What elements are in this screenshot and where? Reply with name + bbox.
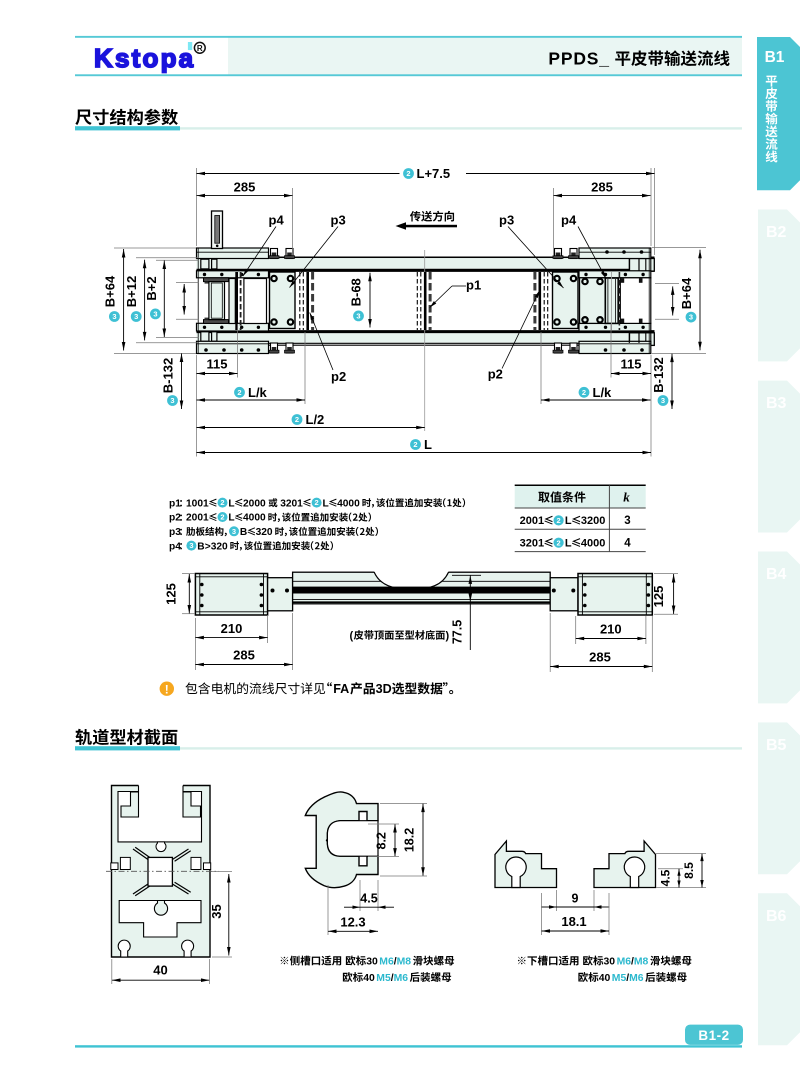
svg-text:2: 2 — [406, 169, 410, 178]
svg-text:35: 35 — [209, 904, 224, 918]
svg-text:B: B — [240, 527, 247, 538]
svg-text:L: L — [565, 515, 572, 527]
svg-text:2: 2 — [557, 538, 561, 547]
svg-text:4.5: 4.5 — [659, 869, 673, 886]
svg-text:M6: M6 — [617, 957, 632, 968]
svg-text:8.5: 8.5 — [682, 862, 696, 879]
svg-text:B+64: B+64 — [102, 275, 117, 307]
svg-text:PPDS_: PPDS_ — [548, 49, 609, 69]
svg-text:L: L — [228, 513, 234, 524]
svg-text:p2: p2 — [169, 513, 181, 524]
svg-text:L/k: L/k — [593, 385, 613, 400]
svg-text:L/k: L/k — [248, 385, 268, 400]
svg-text:p3: p3 — [331, 213, 346, 228]
svg-text:4000: 4000 — [243, 513, 266, 524]
svg-text:2: 2 — [413, 440, 417, 449]
svg-text:B5: B5 — [766, 737, 787, 754]
svg-text:B+12: B+12 — [124, 276, 139, 307]
svg-text:2: 2 — [557, 516, 561, 525]
svg-text:p2: p2 — [331, 369, 346, 384]
svg-text:9: 9 — [572, 891, 579, 905]
svg-text:!: ! — [165, 682, 169, 696]
svg-text:210: 210 — [221, 621, 243, 636]
svg-text:p1: p1 — [466, 278, 481, 293]
svg-text:L+7.5: L+7.5 — [417, 166, 451, 181]
svg-text:30: 30 — [366, 957, 378, 968]
svg-text:L: L — [424, 437, 432, 452]
svg-text:B-132: B-132 — [161, 358, 176, 393]
svg-text:L: L — [323, 498, 329, 509]
svg-text:3201: 3201 — [520, 538, 544, 550]
svg-text:3: 3 — [232, 527, 236, 536]
svg-text:p4: p4 — [561, 213, 577, 228]
svg-text:M5: M5 — [612, 973, 627, 984]
svg-text:R: R — [197, 44, 203, 53]
svg-text:3: 3 — [134, 312, 138, 321]
svg-text:M6: M6 — [379, 957, 394, 968]
svg-text:M6: M6 — [629, 973, 644, 984]
svg-text:p4: p4 — [169, 541, 181, 552]
svg-text:125: 125 — [164, 583, 179, 605]
svg-text:B3: B3 — [766, 395, 787, 412]
svg-text:p1: p1 — [169, 498, 181, 509]
svg-text:3: 3 — [356, 312, 360, 321]
svg-text:3: 3 — [170, 396, 174, 405]
svg-text:125: 125 — [651, 586, 666, 608]
svg-text:3D: 3D — [376, 682, 392, 696]
svg-text:4.5: 4.5 — [360, 892, 377, 906]
svg-text:40: 40 — [153, 963, 167, 978]
svg-text:285: 285 — [589, 650, 611, 665]
svg-text:p2: p2 — [488, 367, 503, 382]
svg-text:3: 3 — [689, 313, 693, 322]
svg-text:p4: p4 — [269, 213, 285, 228]
svg-text:B: B — [197, 541, 204, 552]
svg-text:285: 285 — [233, 648, 255, 663]
svg-text:B-68: B-68 — [348, 278, 363, 306]
svg-text:3: 3 — [624, 515, 630, 527]
svg-text:B+2: B+2 — [144, 276, 159, 300]
svg-text:2: 2 — [315, 498, 319, 507]
svg-text:L: L — [228, 498, 234, 509]
svg-text:B1: B1 — [765, 49, 785, 66]
svg-text:285: 285 — [234, 179, 256, 194]
svg-text:M5: M5 — [376, 973, 391, 984]
svg-text:8.2: 8.2 — [375, 832, 389, 849]
svg-text:320: 320 — [256, 527, 273, 538]
svg-text:p3: p3 — [499, 213, 514, 228]
svg-text:L: L — [565, 538, 572, 550]
svg-text:3200: 3200 — [581, 515, 605, 527]
svg-text:18.1: 18.1 — [561, 914, 586, 929]
svg-text:3: 3 — [112, 312, 116, 321]
svg-text:3: 3 — [189, 541, 193, 550]
svg-text:M8: M8 — [397, 957, 412, 968]
svg-text:40: 40 — [599, 973, 611, 984]
svg-text:p3: p3 — [169, 527, 181, 538]
svg-text:285: 285 — [591, 179, 613, 194]
svg-text:FA: FA — [333, 682, 349, 696]
svg-text:2: 2 — [220, 513, 224, 522]
svg-text:12.3: 12.3 — [340, 914, 365, 929]
svg-text:B+64: B+64 — [679, 277, 694, 309]
svg-text:Kstopa: Kstopa — [94, 43, 195, 73]
svg-text:115: 115 — [621, 357, 642, 372]
svg-text:M6: M6 — [394, 973, 409, 984]
svg-text:2001: 2001 — [520, 515, 544, 527]
svg-text:4000: 4000 — [337, 498, 360, 509]
svg-text:4000: 4000 — [581, 538, 605, 550]
svg-text:115: 115 — [207, 357, 228, 372]
svg-text:77.5: 77.5 — [451, 620, 465, 644]
svg-text:18.2: 18.2 — [403, 828, 417, 852]
svg-text:L/2: L/2 — [306, 412, 325, 427]
svg-text:B4: B4 — [766, 566, 787, 583]
svg-text:(: ( — [350, 630, 354, 642]
svg-text:2: 2 — [582, 388, 586, 397]
svg-text:320: 320 — [211, 541, 228, 552]
svg-text:3201: 3201 — [280, 498, 303, 509]
svg-text:2001: 2001 — [186, 513, 209, 524]
svg-text:4: 4 — [624, 538, 631, 550]
svg-text:1001: 1001 — [186, 498, 209, 509]
svg-text:2: 2 — [295, 415, 299, 424]
svg-text:210: 210 — [600, 622, 622, 637]
svg-text:40: 40 — [363, 973, 375, 984]
svg-text:B2: B2 — [766, 224, 787, 241]
svg-text:M8: M8 — [634, 957, 649, 968]
svg-text:3: 3 — [661, 396, 665, 405]
svg-text:k: k — [623, 490, 630, 505]
svg-text:2: 2 — [220, 498, 224, 507]
svg-text:2000: 2000 — [243, 498, 266, 509]
svg-text:B6: B6 — [766, 908, 787, 925]
svg-text:3: 3 — [153, 310, 157, 319]
svg-text:2: 2 — [237, 388, 241, 397]
svg-text:B-132: B-132 — [651, 357, 666, 392]
svg-text:B1-2: B1-2 — [698, 1028, 729, 1043]
svg-text:): ) — [446, 630, 450, 642]
svg-text:30: 30 — [604, 957, 616, 968]
